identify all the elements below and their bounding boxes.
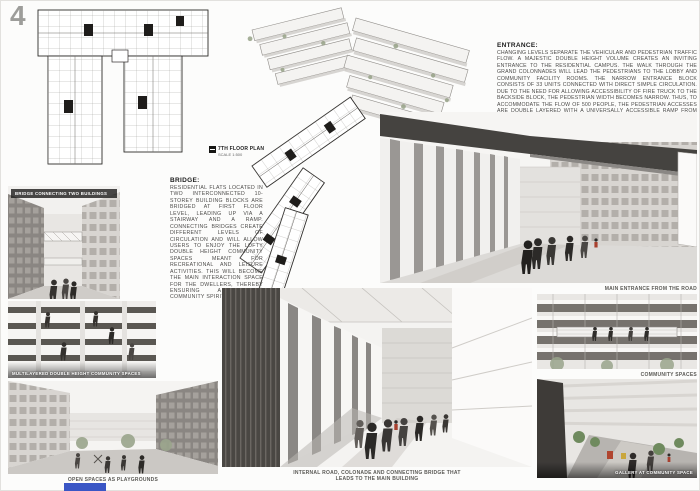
community-photo-caption: MULTILAYERED DOUBLE HEIGHT COMMUNITY SPA…: [12, 371, 141, 376]
playground-caption: OPEN SPACES AS PLAYGROUNDS: [8, 477, 218, 483]
community-spaces-caption: COMMUNITY SPACES: [537, 372, 697, 378]
bridge-photo-caption: BRIDGE CONNECTING TWO BUILDINGS: [11, 189, 117, 198]
main-entrance-caption: MAIN ENTRANCE FROM THE ROAD: [560, 286, 697, 292]
gallery-photo: GALLERY AT COMMUNITY SPACE: [537, 379, 697, 478]
bridge-body: RESIDENTIAL FLATS LOCATED IN TWO INTERCO…: [170, 185, 263, 301]
entrance-heading: ENTRANCE:: [497, 42, 697, 49]
presentation-board: 4: [0, 0, 700, 491]
floor-plan-drawing: [26, 4, 220, 170]
playground-render: [8, 381, 218, 474]
scale-marker-icon: [209, 146, 216, 153]
page-number: 4: [10, 0, 26, 32]
community-spaces-photo: [537, 294, 697, 369]
plan-scale: SCALE 1:500: [218, 152, 264, 157]
bridge-render: [8, 186, 120, 299]
community-spaces-render: [537, 294, 697, 369]
main-entrance-render: [380, 112, 697, 283]
internal-road-caption: INTERNAL ROAD, COLONADE AND CONNECTING B…: [287, 470, 467, 482]
main-entrance-photo: [380, 112, 697, 283]
bridge-photo: BRIDGE CONNECTING TWO BUILDINGS: [8, 186, 120, 299]
accent-bar: [64, 483, 106, 491]
community-photo: MULTILAYERED DOUBLE HEIGHT COMMUNITY SPA…: [8, 301, 156, 378]
internal-road-photo: [222, 288, 532, 467]
bridge-text-block: BRIDGE: RESIDENTIAL FLATS LOCATED IN TWO…: [170, 177, 263, 301]
internal-road-render: [222, 288, 532, 467]
plan-label: 7TH FLOOR PLAN SCALE 1:500: [209, 146, 264, 157]
playground-photo: [8, 381, 218, 474]
gallery-caption: GALLERY AT COMMUNITY SPACE: [615, 470, 693, 475]
bridge-heading: BRIDGE:: [170, 177, 263, 184]
